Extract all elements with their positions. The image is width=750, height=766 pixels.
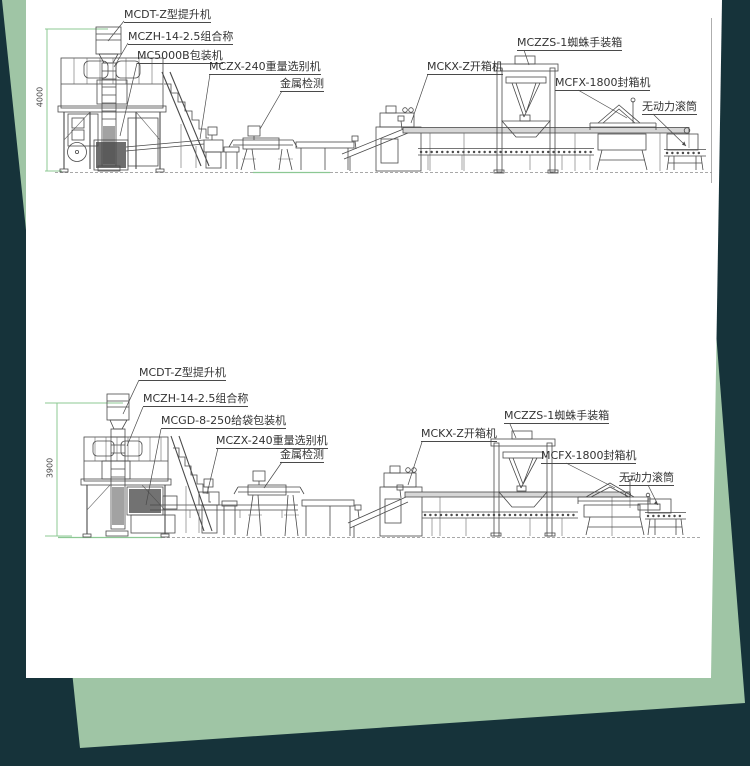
roller-conveyor-drawing — [422, 512, 578, 536]
label-metal-detector-2: 金属检测 — [280, 449, 324, 463]
dimension-label-3900: 3900 — [46, 458, 55, 478]
label-combination-weigher-1: MCZH-14-2.5组合称 — [128, 31, 233, 45]
page-background: 4000 MCDT-Z型提升机 MCZH-14-2.5组合称 MC5000B包装… — [0, 0, 750, 766]
label-spider-case-packer-1: MCZZS-1蜘蛛手装箱 — [517, 37, 622, 51]
label-checkweigher-2: MCZX-240重量选别机 — [216, 435, 328, 449]
label-packaging-machine-2: MCGD-8-250给袋包装机 — [161, 415, 286, 429]
case-opener-drawing — [380, 466, 422, 536]
label-case-opener-2: MCKX-Z开箱机 — [421, 428, 497, 442]
label-case-opener-1: MCKX-Z开箱机 — [427, 61, 503, 75]
dimension-label-4000: 4000 — [36, 87, 45, 107]
spider-case-packer-drawing — [494, 56, 558, 173]
carton-rail-drawing — [403, 128, 690, 172]
elevator-drawing — [106, 394, 129, 536]
gravity-roller-drawing — [664, 134, 706, 170]
label-checkweigher-1: MCZX-240重量选别机 — [209, 61, 321, 75]
label-gravity-roller-2: 无动力滚筒 — [619, 472, 674, 486]
conveyor-drawing — [296, 142, 354, 170]
spider-case-packer-drawing — [491, 431, 555, 536]
roller-conveyor-drawing — [418, 149, 594, 171]
label-elevator-2: MCDT-Z型提升机 — [139, 367, 226, 381]
label-elevator-1: MCDT-Z型提升机 — [124, 9, 211, 23]
label-case-sealer-2: MCFX-1800封箱机 — [541, 450, 636, 464]
carton-rail-drawing — [405, 492, 631, 536]
incline-conveyor-drawing — [348, 485, 408, 537]
stairs-drawing — [162, 72, 209, 168]
label-metal-detector-1: 金属检测 — [280, 78, 324, 92]
label-case-sealer-1: MCFX-1800封箱机 — [555, 77, 650, 91]
label-combination-weigher-2: MCZH-14-2.5组合称 — [143, 393, 248, 407]
checkweigher-drawing — [204, 127, 239, 169]
checkweigher-drawing — [199, 479, 237, 535]
label-gravity-roller-1: 无动力滚筒 — [642, 101, 697, 115]
stairs-drawing — [171, 436, 212, 533]
machinery-line-drawing — [0, 0, 750, 766]
conveyor-drawing — [302, 500, 354, 536]
label-spider-case-packer-2: MCZZS-1蜘蛛手装箱 — [504, 410, 609, 424]
bag-packaging-machine-drawing — [127, 487, 298, 533]
